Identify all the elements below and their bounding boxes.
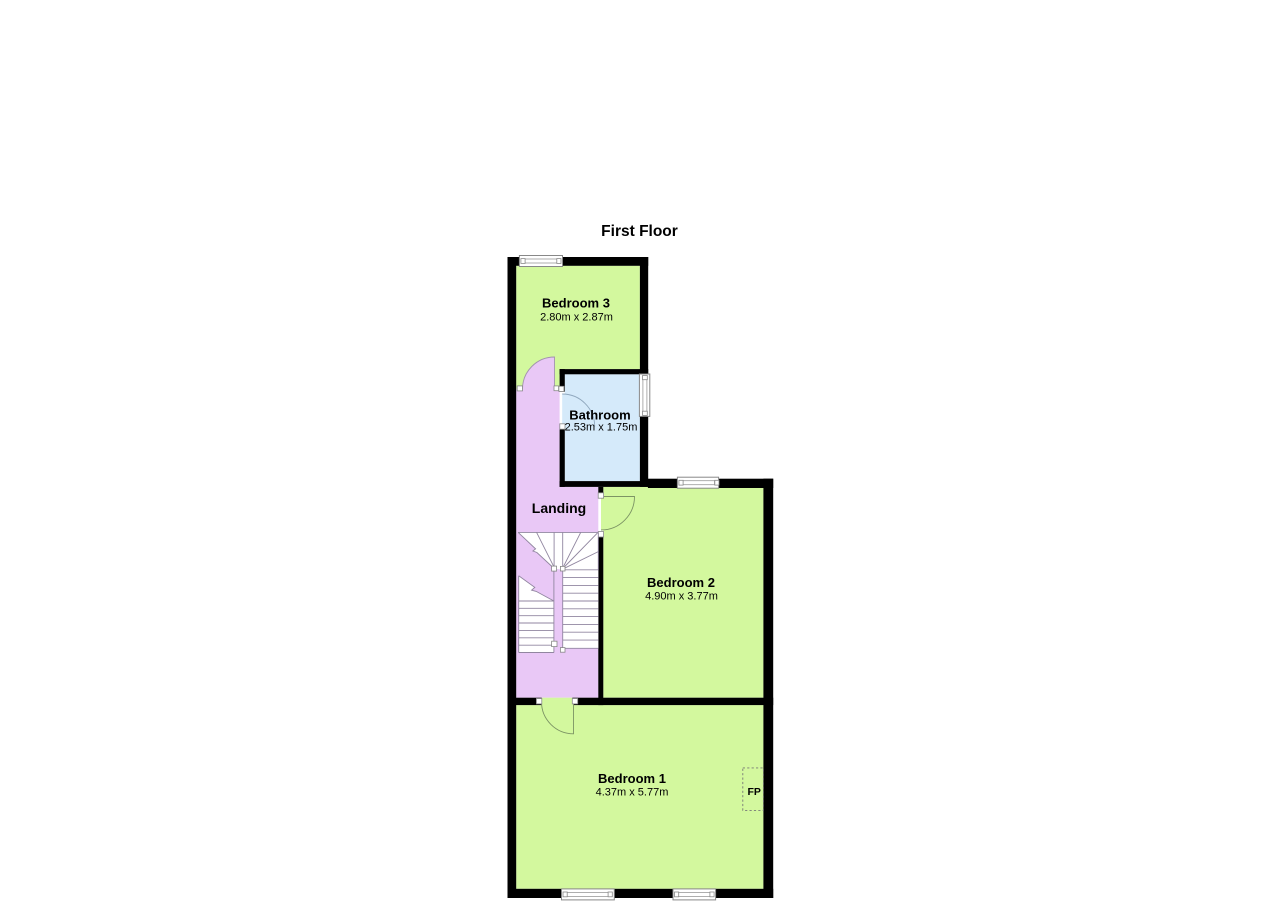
svg-text:Bedroom 1: Bedroom 1 [598,771,666,786]
svg-text:Landing: Landing [532,500,586,516]
svg-text:2.80m x 2.87m: 2.80m x 2.87m [540,311,613,323]
svg-text:Bedroom 2: Bedroom 2 [647,575,715,590]
svg-text:4.90m x 3.77m: 4.90m x 3.77m [645,591,718,603]
svg-text:4.37m x 5.77m: 4.37m x 5.77m [596,787,669,799]
svg-text:2.53m x 1.75m: 2.53m x 1.75m [565,422,638,434]
svg-text:Bathroom: Bathroom [569,408,630,423]
svg-text:Bedroom 3: Bedroom 3 [542,296,610,311]
svg-text:FP: FP [747,786,760,798]
svg-text:First Floor: First Floor [601,223,678,240]
